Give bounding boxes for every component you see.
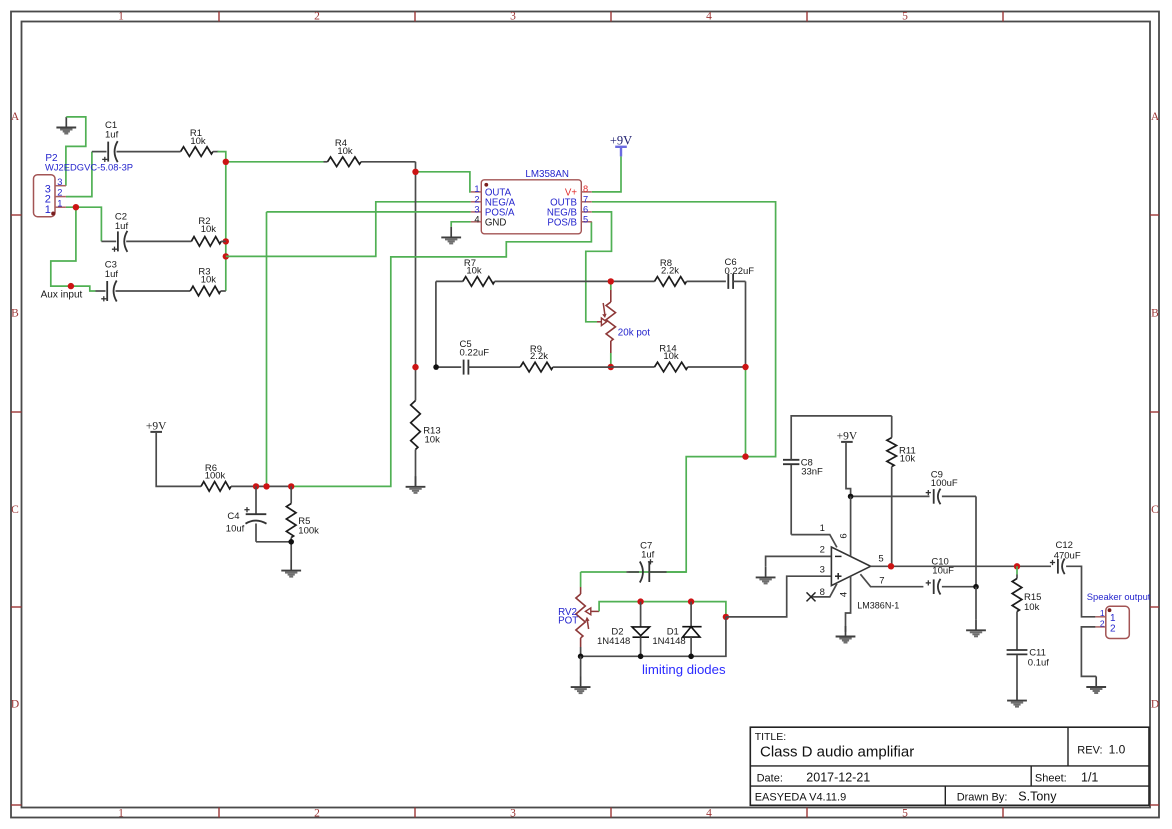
svg-text:470uF: 470uF: [1054, 551, 1081, 562]
svg-text:Drawn By:: Drawn By:: [957, 792, 1008, 804]
svg-text:2: 2: [314, 11, 320, 23]
svg-text:EASYEDA V4.11.9: EASYEDA V4.11.9: [755, 792, 847, 804]
svg-text:100k: 100k: [298, 526, 319, 537]
svg-text:7: 7: [583, 194, 588, 204]
svg-text:33nF: 33nF: [801, 467, 823, 478]
svg-text:+9V: +9V: [146, 421, 167, 433]
svg-text:2: 2: [820, 545, 825, 556]
svg-text:2: 2: [1110, 623, 1116, 634]
svg-text:100k: 100k: [205, 471, 226, 482]
svg-text:0.1uf: 0.1uf: [1028, 658, 1049, 669]
svg-text:Sheet:: Sheet:: [1035, 772, 1067, 784]
svg-text:2.2k: 2.2k: [661, 266, 679, 277]
svg-text:5: 5: [902, 808, 908, 820]
svg-text:Aux input: Aux input: [41, 290, 83, 301]
svg-text:Speaker output: Speaker output: [1087, 591, 1151, 602]
svg-text:3: 3: [474, 204, 479, 214]
svg-text:S.Tony: S.Tony: [1018, 790, 1057, 804]
svg-text:+9V: +9V: [610, 134, 632, 148]
svg-text:8: 8: [583, 184, 588, 194]
svg-text:4: 4: [706, 808, 712, 820]
svg-text:1: 1: [474, 184, 479, 194]
svg-text:5: 5: [583, 214, 588, 224]
svg-text:2017-12-21: 2017-12-21: [806, 770, 870, 784]
svg-text:2: 2: [474, 194, 479, 204]
svg-text:LM386N-1: LM386N-1: [857, 601, 899, 611]
svg-text:+9V: +9V: [837, 431, 858, 443]
svg-text:2: 2: [314, 808, 320, 820]
svg-text:1: 1: [45, 204, 51, 216]
svg-text:D: D: [11, 699, 19, 711]
svg-text:POT: POT: [558, 615, 578, 626]
svg-text:6: 6: [839, 533, 850, 538]
svg-text:C4: C4: [227, 511, 239, 522]
svg-text:1.0: 1.0: [1109, 743, 1126, 757]
svg-text:10uF: 10uF: [932, 565, 954, 576]
svg-text:A: A: [1151, 111, 1160, 123]
svg-text:1uf: 1uf: [115, 221, 129, 232]
svg-text:B: B: [1151, 307, 1159, 319]
svg-text:1: 1: [57, 198, 62, 208]
svg-text:20k pot: 20k pot: [618, 327, 650, 338]
svg-text:10k: 10k: [201, 224, 217, 235]
svg-text:10k: 10k: [190, 136, 206, 147]
svg-text:0.22uF: 0.22uF: [460, 348, 490, 359]
svg-text:REV:: REV:: [1077, 745, 1102, 757]
svg-text:5: 5: [902, 11, 908, 23]
svg-text:1/1: 1/1: [1081, 770, 1098, 784]
svg-text:1N4148: 1N4148: [652, 636, 685, 647]
svg-text:100uF: 100uF: [931, 478, 958, 489]
svg-text:10k: 10k: [1024, 602, 1040, 613]
svg-text:10k: 10k: [425, 435, 441, 446]
svg-text:B: B: [11, 307, 19, 319]
svg-text:2.2k: 2.2k: [530, 351, 548, 362]
svg-text:GND: GND: [485, 218, 507, 229]
svg-text:3: 3: [510, 11, 516, 23]
svg-text:2: 2: [1100, 618, 1105, 628]
svg-text:1: 1: [118, 11, 124, 23]
svg-text:10k: 10k: [201, 275, 217, 286]
svg-text:D: D: [1151, 699, 1159, 711]
svg-text:1: 1: [1100, 608, 1105, 618]
svg-text:limiting diodes: limiting diodes: [642, 662, 726, 677]
svg-text:WJ2EDGVC-5.08-3P: WJ2EDGVC-5.08-3P: [45, 161, 133, 172]
svg-text:1uf: 1uf: [105, 269, 119, 280]
svg-text:3: 3: [510, 808, 516, 820]
svg-text:5: 5: [878, 554, 883, 565]
svg-text:8: 8: [820, 587, 825, 598]
svg-text:TITLE:: TITLE:: [755, 731, 787, 743]
svg-text:10k: 10k: [466, 266, 482, 277]
svg-text:3: 3: [57, 177, 62, 187]
svg-text:10k: 10k: [337, 146, 353, 157]
svg-text:A: A: [11, 111, 20, 123]
svg-text:1: 1: [820, 523, 825, 534]
svg-text:7: 7: [879, 576, 884, 587]
svg-text:0.22uF: 0.22uF: [725, 266, 755, 277]
svg-text:1uf: 1uf: [105, 130, 119, 141]
svg-text:LM358AN: LM358AN: [525, 169, 569, 180]
svg-text:POS/B: POS/B: [547, 218, 577, 229]
svg-text:Date:: Date:: [757, 772, 783, 784]
svg-text:Class D audio amplifiar: Class D audio amplifiar: [760, 744, 914, 761]
svg-text:10k: 10k: [663, 351, 679, 362]
svg-text:1uf: 1uf: [641, 550, 655, 561]
svg-text:1N4148: 1N4148: [597, 636, 630, 647]
svg-text:4: 4: [706, 11, 712, 23]
svg-text:C: C: [11, 504, 19, 516]
svg-text:2: 2: [57, 188, 62, 198]
svg-text:3: 3: [820, 564, 825, 575]
svg-text:10k: 10k: [900, 453, 916, 464]
svg-text:C: C: [1151, 504, 1159, 516]
svg-text:10uf: 10uf: [226, 523, 245, 534]
svg-text:1: 1: [118, 808, 124, 820]
svg-text:4: 4: [839, 592, 850, 597]
svg-text:6: 6: [583, 204, 588, 214]
svg-text:4: 4: [474, 214, 479, 224]
